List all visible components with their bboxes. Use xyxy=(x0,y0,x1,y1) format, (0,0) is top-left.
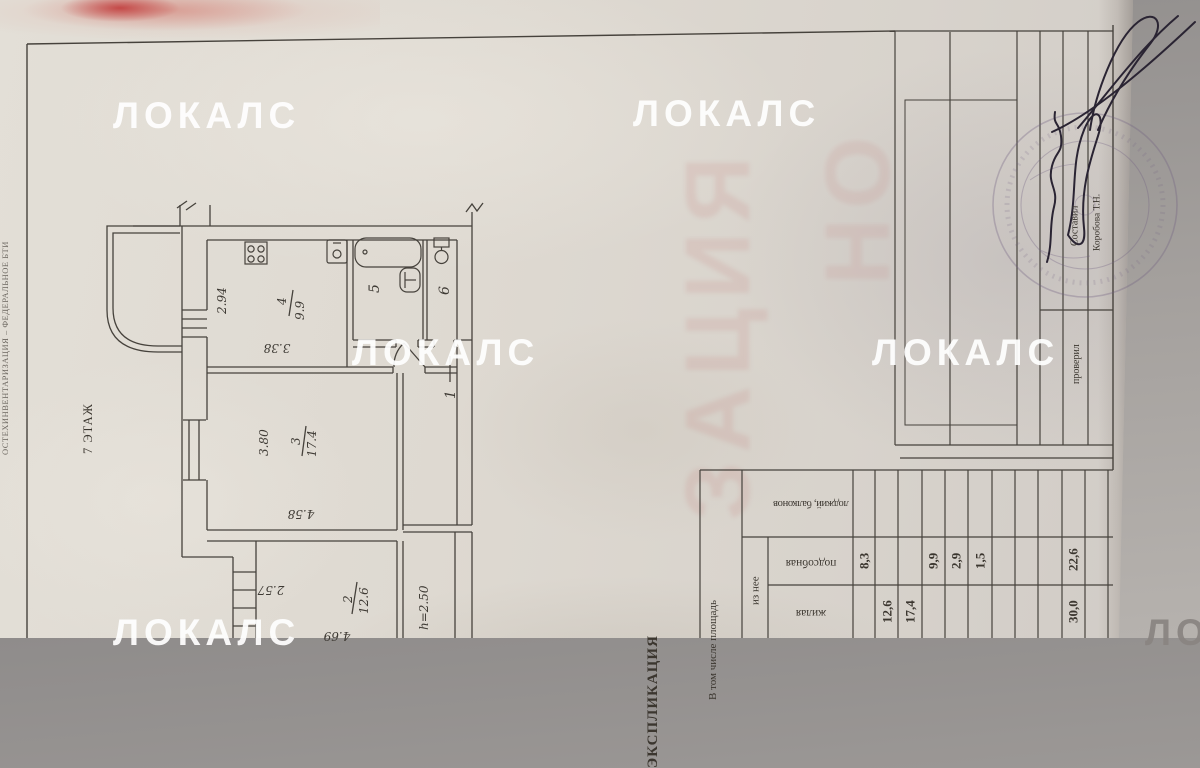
dimension-room2-width: 2.57 xyxy=(249,583,293,598)
utility-area-room4: 9,9 xyxy=(925,538,941,584)
dimension-kitchen-length: 3.38 xyxy=(255,341,299,356)
watermark-logo: ЛОКАЛС xyxy=(113,95,300,137)
room2-area: 12.6 xyxy=(357,581,371,621)
column-living-label: жилая xyxy=(770,604,852,620)
sink-icon xyxy=(327,240,347,263)
explication-header-span: В том числе площадь xyxy=(708,472,734,700)
room2-number: 2 xyxy=(341,586,355,612)
room6-number: 6 xyxy=(437,279,453,303)
utility-area-room1: 8,3 xyxy=(856,538,872,584)
room4-number: 4 xyxy=(275,288,289,314)
dimension-room3-width: 3.80 xyxy=(256,423,272,463)
utility-area-room6: 1,5 xyxy=(972,538,988,584)
compiled-by-name: Коробова Т.Н. xyxy=(1090,172,1106,272)
column-balcony-label: лоджий, балконов xyxy=(770,495,852,511)
watermark-logo: ЛОКАЛС xyxy=(352,332,539,374)
compiled-by-label: Составил xyxy=(1068,182,1083,270)
dimension-room3-length: 4.58 xyxy=(279,507,323,522)
living-area-room2: 12,6 xyxy=(879,586,895,638)
living-area-total: 30,0 xyxy=(1065,586,1081,638)
washbasin-icon xyxy=(434,238,449,264)
watermark-logo: ЛОКАЛС xyxy=(1145,612,1200,654)
round-stamp xyxy=(993,113,1177,297)
stove-icon xyxy=(245,242,267,264)
explication-header-sub: из нее xyxy=(746,548,766,634)
checked-by-label: проверил xyxy=(1069,324,1085,404)
floor-label: 7 ЭТАЖ xyxy=(78,396,98,462)
room5-number: 5 xyxy=(367,277,383,301)
ceiling-height-label: h=2.50 xyxy=(416,575,432,641)
watermark-logo: ЛОКАЛС xyxy=(872,332,1059,374)
photographed-document: { "watermarks": { "brand": "ЛОКАЛС" }, "… xyxy=(0,0,1200,638)
bathtub-icon xyxy=(355,238,421,267)
dimension-room2-length: 4.69 xyxy=(315,629,359,644)
room4-area: 9.9 xyxy=(293,292,307,328)
watermark-logo: ЛОКАЛС xyxy=(633,93,820,135)
room1-number: 1 xyxy=(443,383,459,407)
dimension-kitchen-width: 2.94 xyxy=(214,281,230,321)
column-utility-label: подсобная xyxy=(770,554,852,570)
toilet-icon xyxy=(400,268,420,292)
bti-edge-text: ОСТЕХИНВЕНТАРИЗАЦИЯ – ФЕДЕРАЛЬНОЕ БТИ xyxy=(1,103,16,455)
utility-area-room5: 2,9 xyxy=(948,538,964,584)
room3-number: 3 xyxy=(289,428,303,454)
living-area-room3: 17,4 xyxy=(902,586,918,638)
floor-plan-walls xyxy=(107,201,483,638)
explication-title: ЭКСПЛИКАЦИЯ xyxy=(646,578,680,768)
room3-area: 17.4 xyxy=(305,424,319,464)
watermark-logo: ЛОКАЛС xyxy=(113,612,300,654)
utility-area-total: 22,6 xyxy=(1065,534,1081,586)
